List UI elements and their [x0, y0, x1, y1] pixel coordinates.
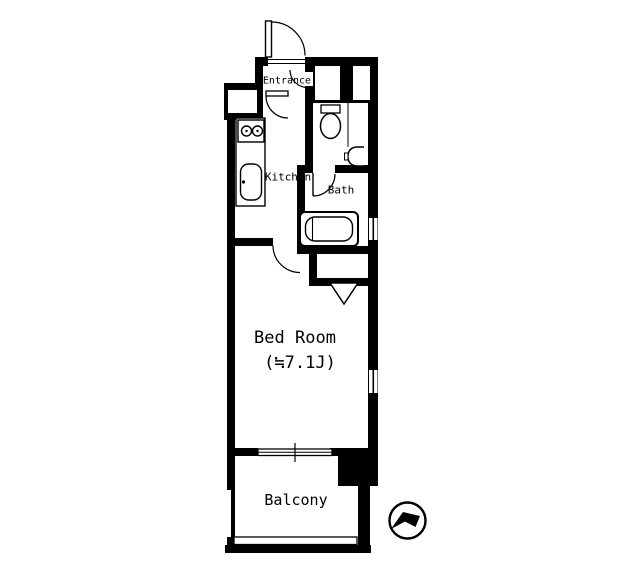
meterbox-inner [228, 90, 257, 113]
balcony-partition-slit [227, 490, 231, 537]
wall-kitchen-bedroom [227, 238, 273, 246]
bedroom-size-label: (≒7.1J) [264, 353, 336, 373]
wall-balcony-block [338, 448, 370, 486]
balcony-sliding-window [258, 443, 332, 462]
hall-door-leaf [266, 91, 288, 96]
bedroom-label: Bed Room [254, 328, 336, 348]
entrance-label: Entrance [263, 76, 311, 87]
closet-door-triangle [330, 283, 358, 304]
washbasin-faucet [345, 153, 349, 160]
kitchen-label: Kitchen [265, 171, 311, 184]
wall-bath-divider [335, 165, 370, 173]
pipe-space-box-2 [353, 66, 370, 100]
wall-bottom [225, 545, 371, 553]
kitchen-sink-icon [241, 164, 262, 200]
wall-balcony-right [358, 486, 370, 553]
bath-label: Bath [328, 184, 355, 197]
toilet-tank [321, 105, 340, 113]
wall-balcony-left-seg [227, 448, 258, 456]
entrance-opening [268, 57, 305, 66]
toilet-bowl [321, 114, 341, 139]
compass-icon [390, 503, 426, 539]
hall-door-arc [266, 96, 288, 118]
washbasin-icon [345, 147, 365, 166]
balcony-label: Balcony [264, 491, 327, 509]
entrance-door-arc [272, 22, 306, 56]
wall-left-main [227, 113, 235, 545]
wall-top-left-seg [255, 57, 268, 66]
bathtub-icon [300, 212, 358, 246]
hall-door [266, 91, 288, 118]
toilet-icon [321, 105, 341, 139]
stove-icon [238, 120, 264, 142]
entrance-door [266, 21, 306, 57]
bedroom-door-arc [273, 246, 300, 273]
kitchen-counter [236, 118, 265, 206]
floorplan-drawing [0, 0, 640, 569]
wall-right [368, 57, 378, 486]
floorplan-canvas: Entrance Kitchen Bath Bed Room (≒7.1J) B… [0, 0, 640, 569]
pipe-space-box-1 [315, 66, 340, 100]
balcony-rail [234, 537, 357, 545]
wall-wc-left [305, 103, 313, 165]
entrance-door-leaf [266, 21, 272, 57]
